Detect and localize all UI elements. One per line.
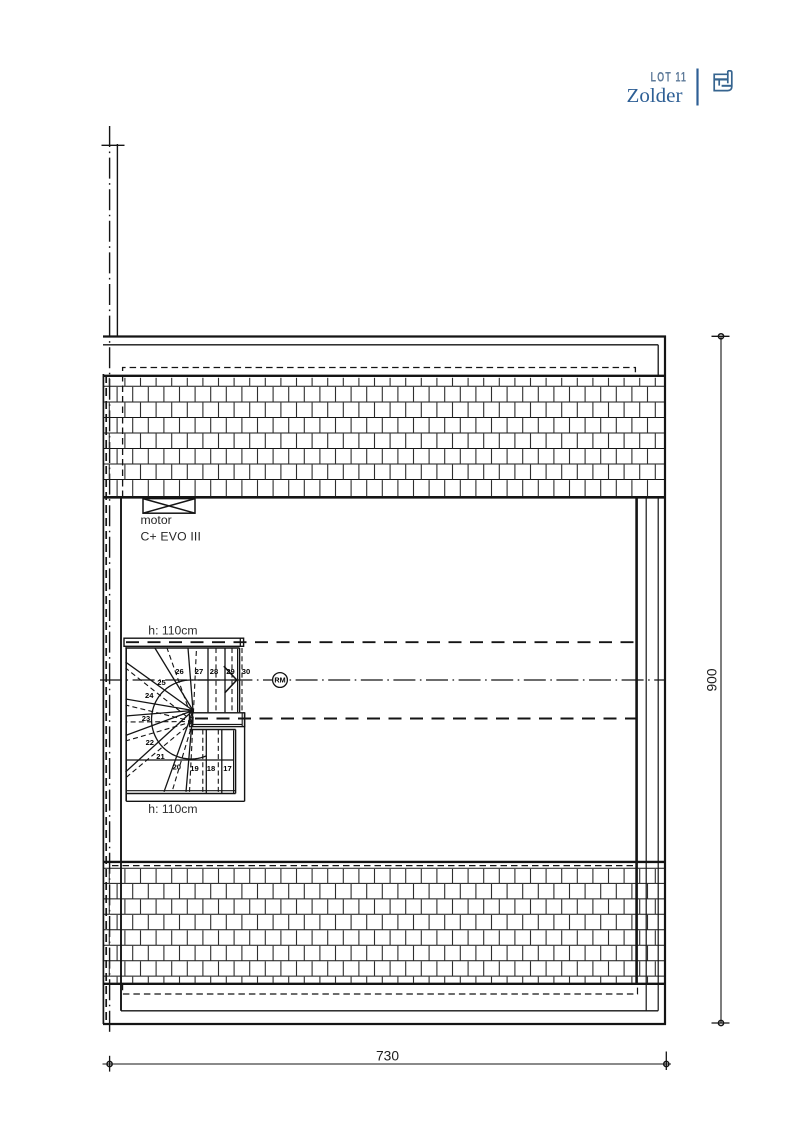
svg-text:17: 17 xyxy=(223,764,231,773)
svg-text:Zolder: Zolder xyxy=(627,85,683,107)
svg-text:30: 30 xyxy=(242,667,250,676)
svg-text:h: 110cm: h: 110cm xyxy=(148,624,197,638)
svg-text:22: 22 xyxy=(146,738,154,747)
svg-text:24: 24 xyxy=(145,691,154,700)
svg-text:27: 27 xyxy=(195,667,203,676)
svg-text:20: 20 xyxy=(173,763,181,772)
svg-text:C+ EVO III: C+ EVO III xyxy=(141,529,202,543)
svg-text:LOT 11: LOT 11 xyxy=(651,70,688,85)
svg-text:21: 21 xyxy=(156,752,165,761)
svg-text:26: 26 xyxy=(175,667,183,676)
svg-text:900: 900 xyxy=(704,668,719,691)
svg-text:28: 28 xyxy=(210,667,218,676)
svg-text:RM: RM xyxy=(274,676,285,685)
svg-text:19: 19 xyxy=(190,764,198,773)
svg-text:h: 110cm: h: 110cm xyxy=(148,802,197,816)
svg-text:23: 23 xyxy=(142,714,150,723)
svg-text:18: 18 xyxy=(207,764,215,773)
svg-text:29: 29 xyxy=(226,667,234,676)
svg-text:25: 25 xyxy=(157,678,166,687)
svg-text:730: 730 xyxy=(376,1049,399,1064)
svg-text:motor: motor xyxy=(141,513,172,527)
